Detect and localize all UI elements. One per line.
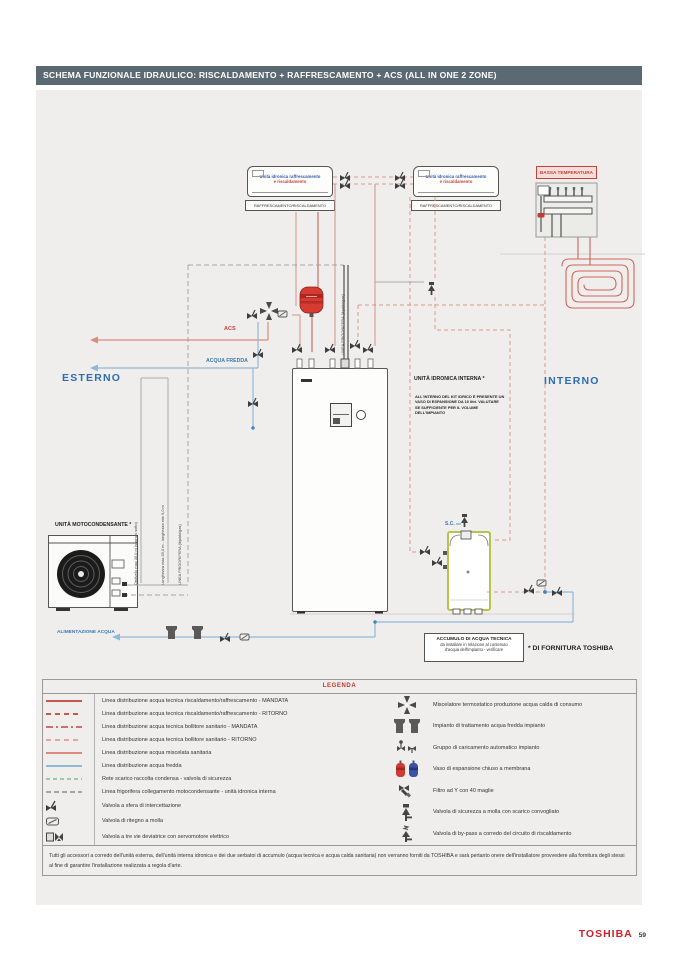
expansion-kit-note: ALL'INTERNO DEL KIT IDRICO È PRESENTE UN… [415, 394, 505, 415]
sanitary-tank [447, 531, 491, 611]
y-filter-icon [399, 783, 416, 798]
legend-box: LEGENDA Linea distribuzione acqua tecnic… [42, 679, 637, 876]
three-way-valve-icon [46, 831, 66, 843]
bypass-valve-icon [401, 825, 414, 842]
control-knob [356, 410, 366, 420]
legend-footnote: Tutti gli accessori a corredo dell'unità… [43, 845, 636, 871]
control-panel [330, 403, 352, 427]
legend-row: Impianto di trattamento acqua fredda imp… [381, 716, 636, 738]
acs-label: ACS [224, 326, 236, 332]
zone-label-interno: INTERNO [544, 375, 600, 387]
fancoil-tag-2: RAFFRESCAMENTO/RISCALDAMENTO [411, 200, 501, 211]
alimentazione-label: ALIMENTAZIONE ACQUA [57, 630, 115, 635]
water-treatment-icon [393, 719, 421, 734]
unit-foot [375, 611, 383, 614]
fancoil-vent [252, 192, 328, 193]
line-sample-bollitore-ritorno [46, 739, 82, 741]
fancoil-tag-1: RAFFRESCAMENTO/RISCALDAMENTO [245, 200, 335, 211]
linea-frigorifera-label-2: LINEA FRIGORIFERA (liquido/gas) [340, 294, 345, 355]
expansion-vessels-icon [395, 760, 419, 778]
legend-row: Linea distribuzione acqua miscelata sani… [43, 746, 381, 759]
page-number: 59 [639, 932, 646, 939]
accumulo-line3: d'acqua dell'impianto - verificare [425, 647, 523, 652]
linea-frigorifera-label: LINEA FRIGORIFERA (liquido/gas) [177, 524, 182, 585]
legend-row: Valvola di sicurezza a molla con scarico… [381, 802, 636, 824]
legend-row: Linea distribuzione acqua tecnica bollit… [43, 733, 381, 746]
ball-valve-icon [46, 800, 60, 812]
fancoil-grille [252, 170, 264, 177]
thermostatic-mixer-icon [398, 696, 416, 714]
legend-right-column: Miscelatore termostatico produzione acqu… [381, 694, 636, 845]
acqua-fredda-label: ACQUA FREDDA [206, 358, 248, 364]
fancoil-unit-1: Unità idronica raffrescamento e riscalda… [247, 166, 333, 197]
legend-row: Linea distribuzione acqua tecnica riscal… [43, 694, 381, 707]
line-sample-frigorifera [46, 791, 82, 793]
bassa-temperatura-label: BASSA TEMPERATURA [536, 166, 597, 179]
lunghezza-label: Lunghezza max 30,0 m - lunghezza min 5,0… [160, 505, 165, 585]
manual-page: SCHEMA FUNZIONALE IDRAULICO: RISCALDAMEN… [0, 0, 678, 959]
legend-row: Rete scarico raccolta condensa - valvola… [43, 772, 381, 785]
dislivello-label: Dislivello max 30,0 m (sopra o sotto) [133, 522, 138, 585]
filling-group-icon [396, 740, 418, 756]
safety-valve-icon [401, 804, 413, 821]
zone-label-esterno: ESTERNO [62, 372, 121, 384]
check-valve-icon [46, 817, 59, 826]
outdoor-unit-label: UNITÀ MOTOCONDENSANTE * [55, 522, 131, 528]
unit-logo-mark [301, 379, 312, 382]
line-sample-miscelata [46, 752, 82, 754]
page-title: SCHEMA FUNZIONALE IDRAULICO: RISCALDAMEN… [36, 66, 642, 85]
legend-row: Vaso di espansione chiuso a membrana [381, 759, 636, 781]
fancoil-vent [418, 192, 494, 193]
legend-row: Valvola di by-pass a corredo del circuit… [381, 823, 636, 845]
legend-row: Valvola a tre vie deviatrice con servomo… [43, 829, 381, 845]
line-sample-bollitore-mandata [46, 726, 82, 728]
fancoil-grille [418, 170, 430, 177]
outdoor-unit [48, 535, 138, 608]
fornitura-note: * DI FORNITURA TOSHIBA [528, 645, 613, 652]
unit-foot [297, 611, 305, 614]
page-footer: TOSHIBA 59 [579, 928, 646, 940]
legend-row: Valvola a sfera di intercettazione [43, 798, 381, 814]
line-sample-condensa [46, 778, 82, 780]
legend-title: LEGENDA [43, 680, 636, 694]
toshiba-logo: TOSHIBA [579, 928, 633, 940]
line-sample-mandata [46, 700, 82, 702]
legend-row: Linea frigorifera collegamento motoconde… [43, 785, 381, 798]
line-sample-ritorno [46, 713, 82, 715]
legend-row: Linea distribuzione acqua fredda [43, 759, 381, 772]
legend-row: Gruppo di caricamento automatico impiant… [381, 737, 636, 759]
legend-row: Filtro ad Y con 40 maglie [381, 780, 636, 802]
indoor-unit-label: UNITÀ IDRONICA INTERNA * [414, 376, 485, 382]
legend-left-column: Linea distribuzione acqua tecnica riscal… [43, 694, 381, 845]
fancoil-unit-2: Unità idronica raffrescamento e riscalda… [413, 166, 499, 197]
indoor-hydronic-unit [292, 368, 388, 612]
legend-row: Valvola di ritegno a molla [43, 814, 381, 830]
fancoil-label-line2: e riscaldamento [248, 179, 332, 184]
legend-row: Linea distribuzione acqua tecnica riscal… [43, 707, 381, 720]
sc-label: S.C. [445, 521, 455, 527]
fancoil-label-line2: e riscaldamento [414, 179, 498, 184]
accumulo-note-box: ACCUMULO DI ACQUA TECNICA da installare … [424, 633, 524, 662]
legend-row: Miscelatore termostatico produzione acqu… [381, 694, 636, 716]
legend-row: Linea distribuzione acqua tecnica bollit… [43, 720, 381, 733]
line-sample-fredda [46, 765, 82, 767]
